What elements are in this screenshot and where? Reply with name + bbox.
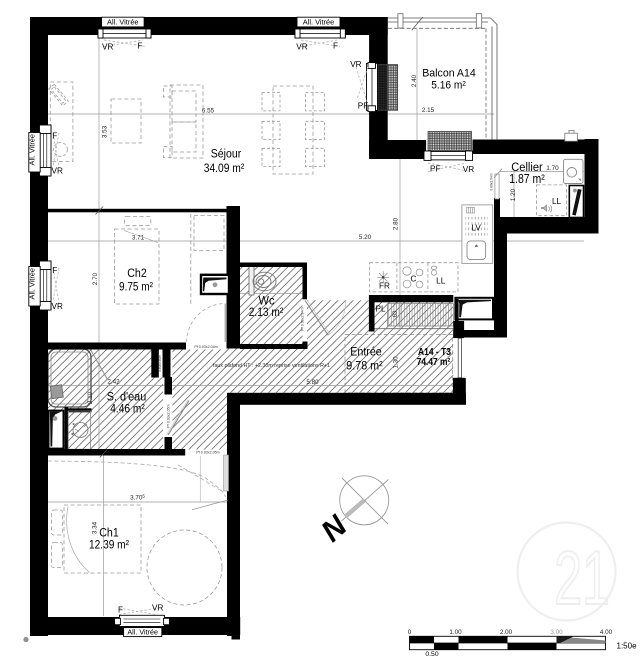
svg-text:1.00: 1.00 bbox=[449, 629, 462, 636]
svg-text:Ch2: Ch2 bbox=[127, 266, 147, 280]
svg-text:1.20: 1.20 bbox=[510, 188, 517, 201]
svg-text:Balcon A14: Balcon A14 bbox=[422, 68, 476, 80]
svg-text:1:50e: 1:50e bbox=[617, 642, 638, 651]
svg-text:74.47 m²: 74.47 m² bbox=[417, 357, 451, 368]
svg-text:All. Vitrée: All. Vitrée bbox=[303, 18, 335, 27]
svg-text:F: F bbox=[333, 42, 338, 51]
svg-text:F: F bbox=[138, 42, 143, 51]
svg-text:2.13 m²: 2.13 m² bbox=[249, 305, 284, 319]
svg-text:PF: PF bbox=[358, 101, 368, 110]
svg-text:VR: VR bbox=[296, 42, 307, 51]
svg-text:3.00: 3.00 bbox=[550, 629, 563, 636]
svg-text:9.75 m²: 9.75 m² bbox=[119, 280, 153, 294]
svg-text:4.00: 4.00 bbox=[600, 629, 613, 636]
svg-text:0.50: 0.50 bbox=[425, 651, 438, 658]
svg-text:3.53: 3.53 bbox=[102, 125, 109, 138]
svg-text:faux plafond HT : +2.30m repri: faux plafond HT : +2.30m reprise ventila… bbox=[213, 363, 330, 369]
svg-text:VR: VR bbox=[463, 165, 474, 174]
svg-text:12.39 m²: 12.39 m² bbox=[89, 538, 129, 552]
svg-text:2.15: 2.15 bbox=[422, 107, 435, 114]
svg-text:0.60x0.60m: 0.60x0.60m bbox=[158, 355, 162, 372]
svg-text:2.42: 2.42 bbox=[107, 379, 120, 386]
svg-text:1.87 m²: 1.87 m² bbox=[509, 172, 545, 186]
svg-text:63: 63 bbox=[393, 311, 399, 317]
svg-text:1.30: 1.30 bbox=[393, 356, 400, 369]
svg-text:All. Vitrée: All. Vitrée bbox=[28, 268, 37, 300]
svg-text:9.78 m²: 9.78 m² bbox=[346, 359, 383, 373]
svg-text:34.09 m²: 34.09 m² bbox=[204, 161, 245, 175]
svg-text:5.20: 5.20 bbox=[359, 234, 372, 241]
svg-text:LL: LL bbox=[552, 197, 562, 206]
svg-text:Pf 0.93x2.05m: Pf 0.93x2.05m bbox=[196, 450, 219, 454]
svg-text:6.55: 6.55 bbox=[202, 107, 215, 114]
svg-text:F: F bbox=[52, 131, 57, 140]
svg-text:Pf 0.93x2.05m: Pf 0.93x2.05m bbox=[167, 404, 171, 427]
svg-text:3.34: 3.34 bbox=[92, 521, 99, 534]
svg-text:All. Vitrée: All. Vitrée bbox=[107, 18, 139, 27]
svg-text:Pf 0.93x2.04m: Pf 0.93x2.04m bbox=[194, 345, 217, 349]
svg-text:C: C bbox=[411, 275, 417, 284]
svg-text:VR: VR bbox=[350, 60, 361, 69]
svg-text:VR: VR bbox=[52, 302, 63, 311]
svg-text:0: 0 bbox=[408, 629, 412, 636]
svg-text:Pf 0.93x2.04m: Pf 0.93x2.04m bbox=[301, 307, 305, 330]
svg-text:2.70: 2.70 bbox=[92, 272, 99, 285]
svg-text:LL: LL bbox=[436, 276, 446, 285]
svg-text:All. Vitrée: All. Vitrée bbox=[127, 628, 158, 637]
svg-text:LV: LV bbox=[471, 224, 481, 233]
svg-text:Séjour: Séjour bbox=[211, 147, 242, 161]
svg-text:0.80x2.04m: 0.80x2.04m bbox=[490, 173, 494, 190]
svg-text:21: 21 bbox=[554, 536, 610, 621]
svg-text:5.16 m²: 5.16 m² bbox=[431, 80, 466, 92]
svg-text:F: F bbox=[118, 606, 123, 615]
svg-text:4.46 m²: 4.46 m² bbox=[110, 402, 145, 416]
svg-text:2.00: 2.00 bbox=[500, 629, 513, 636]
svg-text:FR: FR bbox=[379, 282, 390, 291]
svg-text:PF: PF bbox=[430, 164, 440, 173]
svg-text:VR: VR bbox=[102, 42, 113, 51]
svg-text:PL: PL bbox=[376, 304, 386, 313]
svg-text:F: F bbox=[52, 266, 57, 275]
svg-text:5.80: 5.80 bbox=[306, 379, 319, 386]
svg-text:All. Vitrée: All. Vitrée bbox=[28, 134, 37, 166]
svg-text:1.70: 1.70 bbox=[546, 165, 559, 172]
svg-text:VR: VR bbox=[152, 604, 163, 613]
svg-text:VR: VR bbox=[52, 167, 63, 176]
svg-text:2.40: 2.40 bbox=[411, 74, 418, 87]
svg-text:2.80: 2.80 bbox=[393, 217, 400, 230]
svg-text:Entrée: Entrée bbox=[350, 345, 382, 359]
